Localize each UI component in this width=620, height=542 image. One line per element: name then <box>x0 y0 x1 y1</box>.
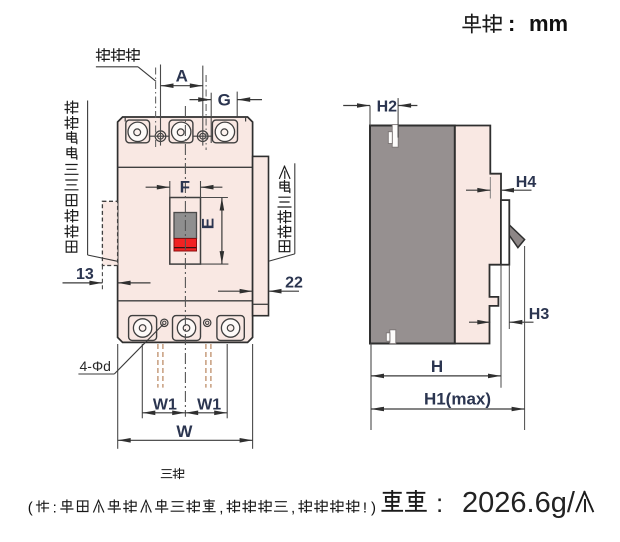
svg-text:H4: H4 <box>516 174 537 191</box>
svg-text:,: , <box>291 499 295 516</box>
svg-text:H3: H3 <box>529 306 550 323</box>
svg-text:): ) <box>371 499 376 516</box>
svg-text:W1: W1 <box>197 396 221 413</box>
svg-text:(: ( <box>28 499 33 516</box>
svg-text:13: 13 <box>76 266 94 283</box>
svg-text:E: E <box>199 218 218 229</box>
svg-text:2026.6g/: 2026.6g/ <box>462 487 576 519</box>
svg-text:G: G <box>218 91 231 110</box>
svg-text:W1: W1 <box>153 396 177 413</box>
svg-text:W: W <box>176 422 193 441</box>
svg-text:!: ! <box>363 499 367 516</box>
svg-text:A: A <box>176 67 188 86</box>
svg-text:4-Φd: 4-Φd <box>80 358 111 374</box>
svg-text:H2: H2 <box>377 99 398 116</box>
svg-text::: : <box>508 11 515 36</box>
svg-text:mm: mm <box>529 11 568 36</box>
svg-text:22: 22 <box>285 275 303 292</box>
svg-text::: : <box>436 488 443 518</box>
svg-text:H1(max): H1(max) <box>424 390 491 409</box>
svg-text::: : <box>53 499 57 516</box>
svg-text:F: F <box>180 178 190 197</box>
svg-text:,: , <box>219 499 223 516</box>
svg-text:H: H <box>431 357 443 376</box>
